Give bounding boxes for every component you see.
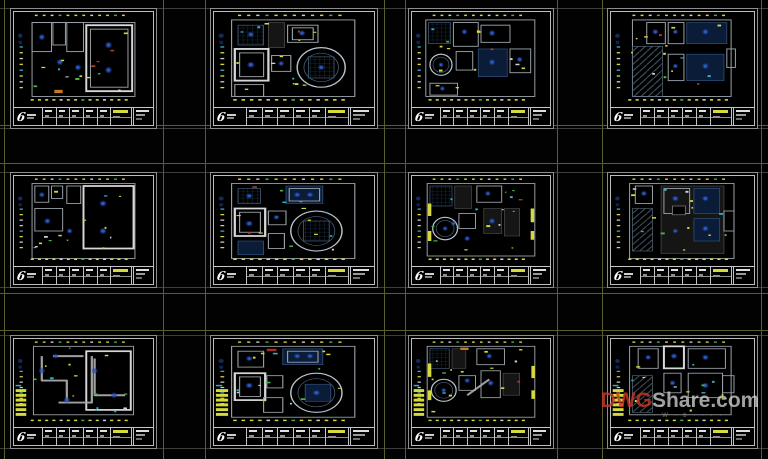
title-block-cell [654, 267, 668, 284]
title-block-drawing-title-cell [710, 267, 731, 284]
sheet-frame: 6 [610, 11, 755, 126]
title-block-logo: 6 [214, 108, 246, 125]
title-block-cell [696, 108, 710, 125]
title-block-cell [480, 267, 494, 284]
title-block-notes [131, 428, 153, 445]
title-block-cell [293, 428, 309, 445]
title-block-logo: 6 [611, 267, 640, 284]
title-block-cell [246, 108, 262, 125]
title-block-drawing-title-cell [110, 428, 130, 445]
drawing-sheet-10[interactable]: 6 [210, 335, 378, 449]
title-block-cell [696, 267, 710, 284]
plan-drawing [14, 176, 153, 266]
title-block-cell [277, 267, 293, 284]
title-block-cell [42, 108, 56, 125]
title-block-drawing-title-cell [110, 108, 130, 125]
plan-area [214, 339, 374, 427]
drawing-sheet-6[interactable]: 6 [210, 172, 378, 288]
title-block: 6 [214, 107, 374, 125]
title-block-cell [494, 108, 508, 125]
title-block-cell [69, 267, 83, 284]
title-block-logo: 6 [611, 428, 640, 445]
title-block: 6 [412, 266, 550, 284]
drawing-title-highlight [713, 269, 728, 272]
title-block-drawing-title-cell [710, 108, 731, 125]
title-block: 6 [214, 427, 374, 445]
logo-glyph: 6 [216, 270, 226, 282]
logo-text-lines [27, 434, 36, 439]
logo-glyph: 6 [613, 431, 623, 443]
plan-area [412, 176, 550, 266]
plan-area [412, 339, 550, 427]
title-block-notes [528, 108, 550, 125]
sheet-frame: 6 [213, 338, 375, 446]
title-block-cell [56, 267, 70, 284]
title-block-cell [696, 428, 710, 445]
title-block-cell [440, 428, 454, 445]
title-block-notes [528, 267, 550, 284]
title-block-cell [293, 267, 309, 284]
title-block: 6 [412, 107, 550, 125]
title-block-cell [640, 267, 654, 284]
title-block-cell [682, 108, 696, 125]
title-block-logo: 6 [611, 108, 640, 125]
title-block-drawing-title-cell [508, 428, 528, 445]
title-block-notes [131, 267, 153, 284]
plan-drawing [412, 176, 550, 266]
title-block-cell [668, 108, 682, 125]
logo-glyph: 6 [613, 270, 623, 282]
title-block-cell [440, 108, 454, 125]
title-block-cell [83, 108, 97, 125]
plan-area [14, 176, 153, 266]
title-block-drawing-title-cell [110, 267, 130, 284]
title-block-cell [246, 428, 262, 445]
title-block-logo: 6 [14, 267, 42, 284]
plan-drawing [611, 339, 754, 427]
title-block-cell [277, 108, 293, 125]
drawing-sheet-7[interactable]: 6 [408, 172, 554, 288]
sheet-frame: 6 [411, 175, 551, 285]
title-block-notes [348, 267, 374, 284]
plan-area [412, 12, 550, 107]
logo-glyph: 6 [414, 431, 424, 443]
title-block-cell [480, 108, 494, 125]
title-block-notes [731, 267, 754, 284]
title-block-cell [97, 428, 111, 445]
title-block-cell [467, 428, 481, 445]
drawing-sheet-11[interactable]: 6 [408, 335, 554, 449]
logo-text-lines [227, 434, 236, 439]
plan-drawing [14, 12, 153, 107]
title-block-cell [682, 267, 696, 284]
drawing-title-highlight [328, 110, 346, 113]
title-block-cell [467, 267, 481, 284]
drawing-title-highlight [328, 430, 346, 433]
title-block-cell [97, 267, 111, 284]
title-block-cell [56, 428, 70, 445]
drawing-title-highlight [113, 430, 128, 433]
title-block-cell [654, 108, 668, 125]
title-block-logo: 6 [412, 108, 440, 125]
title-block-cell [494, 428, 508, 445]
title-block-cell [668, 267, 682, 284]
title-block-drawing-title-cell [508, 267, 528, 284]
drawing-sheet-9[interactable]: 6 [10, 335, 157, 449]
drawing-sheet-5[interactable]: 6 [10, 172, 157, 288]
sheet-frame: 6 [411, 338, 551, 446]
drawing-sheet-4[interactable]: 6 [607, 8, 758, 129]
title-block-logo: 6 [412, 428, 440, 445]
title-block-cell [83, 267, 97, 284]
title-block-logo: 6 [412, 267, 440, 284]
title-block: 6 [214, 266, 374, 284]
logo-text-lines [227, 273, 236, 278]
logo-text-lines [624, 434, 633, 439]
title-block-cell [453, 428, 467, 445]
plan-drawing [214, 176, 374, 266]
plan-drawing [412, 339, 550, 427]
title-block-cell [682, 428, 696, 445]
title-block-notes [348, 428, 374, 445]
sheets-layer: 6 6 [0, 0, 768, 459]
title-block-cell [440, 267, 454, 284]
title-block-logo: 6 [214, 267, 246, 284]
drawing-sheet-12[interactable]: 6 [607, 335, 758, 449]
plan-drawing [14, 339, 153, 427]
sheet-frame: 6 [610, 175, 755, 285]
logo-glyph: 6 [16, 270, 26, 282]
title-block-cell [97, 108, 111, 125]
title-block: 6 [412, 427, 550, 445]
title-block-cell [480, 428, 494, 445]
drawing-title-highlight [511, 430, 525, 433]
logo-glyph: 6 [414, 111, 424, 123]
logo-glyph: 6 [16, 431, 26, 443]
drawing-sheet-1[interactable]: 6 [10, 8, 157, 129]
plan-area [14, 12, 153, 107]
logo-text-lines [227, 114, 236, 119]
plan-drawing [611, 176, 754, 266]
logo-glyph: 6 [613, 111, 623, 123]
logo-text-lines [27, 273, 36, 278]
drawing-title-highlight [328, 269, 346, 272]
title-block: 6 [611, 427, 754, 445]
title-block-notes [731, 108, 754, 125]
title-block-cell [69, 108, 83, 125]
title-block-cell [309, 108, 325, 125]
plan-area [214, 12, 374, 107]
title-block-cell [640, 108, 654, 125]
title-block-logo: 6 [14, 428, 42, 445]
cad-sheet-set-canvas[interactable]: 6 6 [0, 0, 768, 459]
plan-area [611, 12, 754, 107]
title-block-cell [494, 267, 508, 284]
sheet-frame: 6 [411, 11, 551, 126]
logo-text-lines [425, 114, 434, 119]
title-block-cell [467, 108, 481, 125]
title-block-notes [731, 428, 754, 445]
title-block-cell [69, 428, 83, 445]
sheet-frame: 6 [213, 11, 375, 126]
title-block: 6 [611, 266, 754, 284]
title-block-cell [293, 108, 309, 125]
title-block-cell [246, 267, 262, 284]
title-block-cell [262, 267, 278, 284]
title-block-notes [131, 108, 153, 125]
logo-text-lines [425, 434, 434, 439]
sheet-frame: 6 [13, 338, 154, 446]
drawing-title-highlight [713, 430, 728, 433]
sheet-frame: 6 [213, 175, 375, 285]
title-block-drawing-title-cell [325, 108, 349, 125]
title-block-drawing-title-cell [710, 428, 731, 445]
title-block: 6 [14, 266, 153, 284]
drawing-title-highlight [113, 269, 128, 272]
logo-text-lines [624, 273, 633, 278]
plan-drawing [214, 12, 374, 107]
drawing-sheet-2[interactable]: 6 [210, 8, 378, 129]
title-block-cell [640, 428, 654, 445]
plan-drawing [412, 12, 550, 107]
drawing-title-highlight [511, 110, 525, 113]
title-block-cell [668, 428, 682, 445]
logo-text-lines [27, 114, 36, 119]
title-block-cell [42, 267, 56, 284]
title-block-logo: 6 [14, 108, 42, 125]
title-block-cell [277, 428, 293, 445]
plan-area [214, 176, 374, 266]
title-block-logo: 6 [214, 428, 246, 445]
plan-area [611, 176, 754, 266]
title-block-cell [56, 108, 70, 125]
logo-text-lines [624, 114, 633, 119]
drawing-title-highlight [113, 110, 128, 113]
title-block-drawing-title-cell [325, 428, 349, 445]
title-block-cell [42, 428, 56, 445]
drawing-title-highlight [713, 110, 728, 113]
drawing-sheet-8[interactable]: 6 [607, 172, 758, 288]
title-block-cell [262, 108, 278, 125]
sheet-frame: 6 [13, 11, 154, 126]
title-block: 6 [611, 107, 754, 125]
title-block-cell [83, 428, 97, 445]
title-block-notes [348, 108, 374, 125]
logo-text-lines [425, 273, 434, 278]
title-block-cell [453, 267, 467, 284]
drawing-sheet-3[interactable]: 6 [408, 8, 554, 129]
title-block-drawing-title-cell [508, 108, 528, 125]
title-block-cell [309, 428, 325, 445]
title-block: 6 [14, 427, 153, 445]
title-block: 6 [14, 107, 153, 125]
title-block-drawing-title-cell [325, 267, 349, 284]
sheet-frame: 6 [13, 175, 154, 285]
plan-drawing [611, 12, 754, 107]
drawing-title-highlight [511, 269, 525, 272]
plan-area [611, 339, 754, 427]
logo-glyph: 6 [16, 111, 26, 123]
logo-glyph: 6 [216, 431, 226, 443]
sheet-frame: 6 [610, 338, 755, 446]
title-block-cell [309, 267, 325, 284]
logo-glyph: 6 [216, 111, 226, 123]
title-block-notes [528, 428, 550, 445]
title-block-cell [262, 428, 278, 445]
title-block-cell [453, 108, 467, 125]
title-block-cell [654, 428, 668, 445]
logo-glyph: 6 [414, 270, 424, 282]
plan-area [14, 339, 153, 427]
plan-drawing [214, 339, 374, 427]
